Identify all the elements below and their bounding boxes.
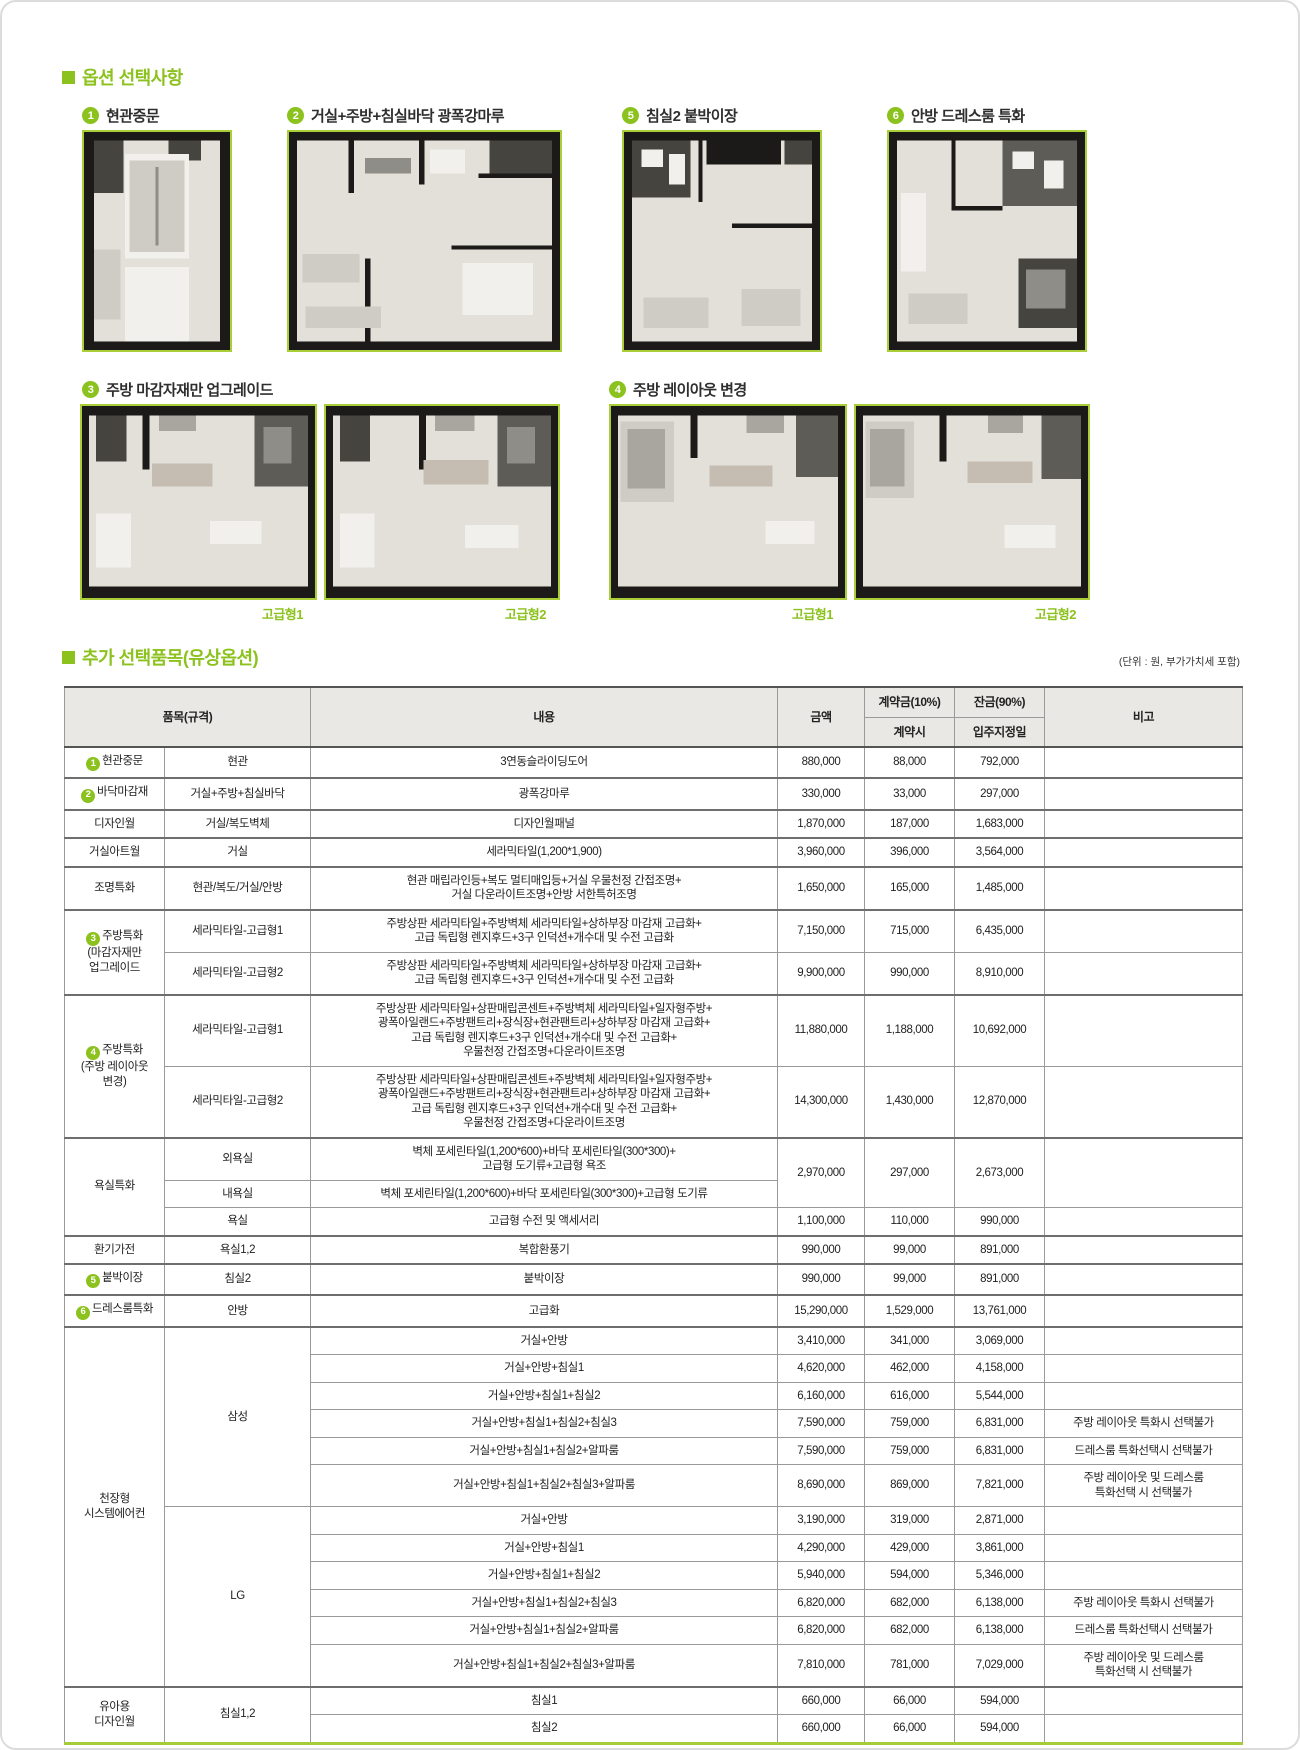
table-cell: 1,870,000 <box>778 810 865 839</box>
table-cell <box>1045 778 1243 809</box>
floor-plan-kitchen-layout-1-image <box>609 404 847 600</box>
table-cell <box>1045 810 1243 839</box>
col-header-balance-when: 입주지정일 <box>955 717 1045 747</box>
table-cell: 거실+안방+침실1 <box>311 1355 778 1383</box>
table-cell: 드레스룸 특화선택시 선택불가 <box>1045 1437 1243 1465</box>
table-cell: 1,485,000 <box>955 867 1045 910</box>
table-cell: 주방상판 세라믹타일+주방벽체 세라믹타일+상하부장 마감재 고급화+고급 독립… <box>311 952 778 995</box>
option-label-text: 주방 레이아웃 변경 <box>633 379 747 400</box>
table-cell: 5붙박이장 <box>65 1264 165 1295</box>
table-cell: 682,000 <box>865 1589 955 1617</box>
table-cell: 세라믹타일-고급형1 <box>165 910 311 953</box>
table-cell: 세라믹타일-고급형2 <box>165 1066 311 1138</box>
table-cell: 욕실특화 <box>65 1138 165 1236</box>
table-cell: 15,290,000 <box>778 1295 865 1326</box>
table-cell: 5,346,000 <box>955 1562 1045 1590</box>
table-cell: 욕실1,2 <box>165 1236 311 1265</box>
table-cell: 천장형시스템에어컨 <box>65 1327 165 1687</box>
table-cell: 환기가전 <box>65 1236 165 1265</box>
table-cell <box>1045 747 1243 778</box>
table-cell <box>1045 1264 1243 1295</box>
paid-options-table-wrap: 품목(규격) 내용 금액 계약금(10%) 잔금(90%) 비고 계약시 입주지… <box>64 686 1242 1745</box>
col-header-downpayment-when: 계약시 <box>865 717 955 747</box>
table-cell: 1,430,000 <box>865 1066 955 1138</box>
option-label-6: 6 안방 드레스룸 특화 <box>887 105 1025 126</box>
table-row: 유아용디자인월침실1,2침실1660,00066,000594,000 <box>65 1687 1243 1715</box>
plan-caption: 고급형1 <box>727 604 833 623</box>
table-cell: 세라믹타일-고급형1 <box>165 995 311 1067</box>
table-cell: 2,970,000 <box>778 1138 865 1208</box>
table-row: 5붙박이장침실2붙박이장990,00099,000891,000 <box>65 1264 1243 1295</box>
option-label-5: 5 침실2 붙박이장 <box>622 105 737 126</box>
floor-plan-flooring-image <box>287 130 562 352</box>
table-cell <box>1045 1534 1243 1562</box>
table-cell: 거실+안방 <box>311 1327 778 1355</box>
option-label-text: 주방 마감자재만 업그레이드 <box>106 379 273 400</box>
table-row: 4주방특화(주방 레이아웃변경)세라믹타일-고급형1주방상판 세라믹타일+상판매… <box>65 995 1243 1067</box>
table-cell: 7,810,000 <box>778 1644 865 1687</box>
col-header-content: 내용 <box>311 687 778 747</box>
option-number-badge: 4 <box>86 1046 100 1060</box>
table-cell: 1,529,000 <box>865 1295 955 1326</box>
table-cell: 거실/복도벽체 <box>165 810 311 839</box>
floor-plan-master-dressroom-image <box>887 130 1087 352</box>
table-row: 거실아트월거실세라믹타일(1,200*1,900)3,960,000396,00… <box>65 838 1243 867</box>
table-cell: 3,861,000 <box>955 1534 1045 1562</box>
table-cell: 297,000 <box>865 1138 955 1208</box>
table-cell: 주방 레이아웃 및 드레스룸특화선택 시 선택불가 <box>1045 1465 1243 1507</box>
table-row: LG거실+안방3,190,000319,0002,871,000 <box>65 1507 1243 1535</box>
table-cell: 1,100,000 <box>778 1208 865 1236</box>
table-cell: 99,000 <box>865 1236 955 1265</box>
col-header-amount: 금액 <box>778 687 865 747</box>
table-cell: 759,000 <box>865 1437 955 1465</box>
table-cell <box>1045 1687 1243 1715</box>
option-number-badge: 6 <box>887 107 904 124</box>
option-number-badge: 5 <box>622 107 639 124</box>
table-cell: 7,590,000 <box>778 1410 865 1438</box>
table-cell: 디자인월패널 <box>311 810 778 839</box>
section-title-text: 옵션 선택사항 <box>82 64 183 90</box>
table-cell: 삼성 <box>165 1327 311 1507</box>
table-cell: 3,564,000 <box>955 838 1045 867</box>
table-cell: 14,300,000 <box>778 1066 865 1138</box>
table-cell: 3,410,000 <box>778 1327 865 1355</box>
table-row: 1현관중문현관3연동슬라이딩도어880,00088,000792,000 <box>65 747 1243 778</box>
table-cell: 319,000 <box>865 1507 955 1535</box>
table-row: 욕실특화외욕실벽체 포세린타일(1,200*600)+바닥 포세린타일(300*… <box>65 1138 1243 1181</box>
table-cell: 66,000 <box>865 1687 955 1715</box>
table-cell: 현관 매립라인등+복도 멀티매입등+거실 우물천정 간접조명+거실 다운라이트조… <box>311 867 778 910</box>
table-cell: 고급화 <box>311 1295 778 1326</box>
section-title-paid-options: 추가 선택품목(유상옵션) <box>62 644 258 670</box>
col-header-item: 품목(규격) <box>65 687 311 747</box>
table-cell: 3,069,000 <box>955 1327 1045 1355</box>
table-cell: 거실+안방+침실1+침실2+알파룸 <box>311 1617 778 1645</box>
table-cell: 4,158,000 <box>955 1355 1045 1383</box>
table-cell: 7,821,000 <box>955 1465 1045 1507</box>
table-cell <box>1045 1295 1243 1326</box>
table-cell: 침실2 <box>165 1264 311 1295</box>
table-cell <box>1045 1327 1243 1355</box>
table-cell: 6,820,000 <box>778 1617 865 1645</box>
table-cell: 297,000 <box>955 778 1045 809</box>
table-cell: 33,000 <box>865 778 955 809</box>
table-cell: 광폭강마루 <box>311 778 778 809</box>
table-cell: 616,000 <box>865 1382 955 1410</box>
table-cell: 3연동슬라이딩도어 <box>311 747 778 778</box>
table-cell <box>1045 1382 1243 1410</box>
table-cell <box>1045 952 1243 995</box>
table-cell: 주방상판 세라믹타일+주방벽체 세라믹타일+상하부장 마감재 고급화+고급 독립… <box>311 910 778 953</box>
table-cell: 주방 레이아웃 특화시 선택불가 <box>1045 1410 1243 1438</box>
option-label-2: 2 거실+주방+침실바닥 광폭강마루 <box>287 105 504 126</box>
table-row: 천장형시스템에어컨삼성거실+안방3,410,000341,0003,069,00… <box>65 1327 1243 1355</box>
table-cell: 4,290,000 <box>778 1534 865 1562</box>
table-cell: 세라믹타일-고급형2 <box>165 952 311 995</box>
table-cell: 5,544,000 <box>955 1382 1045 1410</box>
table-cell: 3,190,000 <box>778 1507 865 1535</box>
table-cell <box>1045 1715 1243 1744</box>
square-bullet-icon <box>62 71 75 84</box>
table-cell: 거실+안방+침실1 <box>311 1534 778 1562</box>
table-cell: 거실+주방+침실바닥 <box>165 778 311 809</box>
table-cell: 891,000 <box>955 1236 1045 1265</box>
table-cell: 9,900,000 <box>778 952 865 995</box>
table-cell: 990,000 <box>778 1264 865 1295</box>
table-cell: 7,150,000 <box>778 910 865 953</box>
table-cell <box>1045 1355 1243 1383</box>
table-header-row: 품목(규격) 내용 금액 계약금(10%) 잔금(90%) 비고 <box>65 687 1243 717</box>
option-number-badge: 4 <box>609 381 626 398</box>
table-cell <box>1045 910 1243 953</box>
table-cell: 8,690,000 <box>778 1465 865 1507</box>
table-row: 환기가전욕실1,2복합환풍기990,00099,000891,000 <box>65 1236 1243 1265</box>
table-cell: 1,683,000 <box>955 810 1045 839</box>
table-cell: 110,000 <box>865 1208 955 1236</box>
table-cell <box>1045 867 1243 910</box>
table-cell: 682,000 <box>865 1617 955 1645</box>
col-header-downpayment: 계약금(10%) <box>865 687 955 717</box>
table-cell: 3주방특화(마감자재만업그레이드 <box>65 910 165 995</box>
option-number-badge: 3 <box>86 932 100 946</box>
table-cell <box>1045 1066 1243 1138</box>
table-cell: 디자인월 <box>65 810 165 839</box>
option-number-badge: 2 <box>81 789 95 803</box>
table-cell: 990,000 <box>778 1236 865 1265</box>
section-title-text: 추가 선택품목(유상옵션) <box>82 644 258 670</box>
table-row: 6드레스룸특화안방고급화15,290,0001,529,00013,761,00… <box>65 1295 1243 1326</box>
table-cell: 396,000 <box>865 838 955 867</box>
table-cell: 현관 <box>165 747 311 778</box>
table-row: 조명특화현관/복도/거실/안방현관 매립라인등+복도 멀티매입등+거실 우물천정… <box>65 867 1243 910</box>
plan-caption: 고급형2 <box>440 604 546 623</box>
table-row: 세라믹타일-고급형2주방상판 세라믹타일+상판매립콘센트+주방벽체 세라믹타일+… <box>65 1066 1243 1138</box>
option-number-badge: 5 <box>86 1274 100 1288</box>
table-cell: 안방 <box>165 1295 311 1326</box>
table-cell: 거실+안방+침실1+침실2+침실3 <box>311 1589 778 1617</box>
table-cell: 주방상판 세라믹타일+상판매립콘센트+주방벽체 세라믹타일+일자형주방+광폭아일… <box>311 995 778 1067</box>
table-cell <box>1045 995 1243 1067</box>
table-cell: 외욕실 <box>165 1138 311 1181</box>
table-cell: 99,000 <box>865 1264 955 1295</box>
table-cell: 6드레스룸특화 <box>65 1295 165 1326</box>
option-label-1: 1 현관중문 <box>82 105 159 126</box>
table-cell: 759,000 <box>865 1410 955 1438</box>
table-cell: 6,435,000 <box>955 910 1045 953</box>
table-row: 3주방특화(마감자재만업그레이드세라믹타일-고급형1주방상판 세라믹타일+주방벽… <box>65 910 1243 953</box>
page: 옵션 선택사항 1 현관중문 2 거실+주방+침실바닥 광폭강마루 5 침실2 … <box>0 0 1300 1750</box>
table-cell <box>1045 1138 1243 1208</box>
table-cell: 주방 레이아웃 및 드레스룸특화선택 시 선택불가 <box>1045 1644 1243 1687</box>
table-cell: 10,692,000 <box>955 995 1045 1067</box>
table-cell: 주방 레이아웃 특화시 선택불가 <box>1045 1589 1243 1617</box>
table-cell: 1현관중문 <box>65 747 165 778</box>
table-cell: 429,000 <box>865 1534 955 1562</box>
table-cell: 벽체 포세린타일(1,200*600)+바닥 포세린타일(300*300)+고급… <box>311 1138 778 1181</box>
table-cell: 11,880,000 <box>778 995 865 1067</box>
table-cell: 594,000 <box>955 1687 1045 1715</box>
unit-note: (단위 : 원, 부가가치세 포함) <box>1119 654 1240 669</box>
table-cell: 187,000 <box>865 810 955 839</box>
table-cell <box>1045 1236 1243 1265</box>
table-cell: 8,910,000 <box>955 952 1045 995</box>
table-cell: 660,000 <box>778 1687 865 1715</box>
table-cell: 792,000 <box>955 747 1045 778</box>
plan-caption: 고급형1 <box>197 604 303 623</box>
table-cell: 6,160,000 <box>778 1382 865 1410</box>
table-cell <box>1045 838 1243 867</box>
table-cell: 88,000 <box>865 747 955 778</box>
table-cell: 880,000 <box>778 747 865 778</box>
table-cell: 침실1,2 <box>165 1687 311 1744</box>
table-cell: 거실 <box>165 838 311 867</box>
table-cell: 1,188,000 <box>865 995 955 1067</box>
table-cell: 거실+안방+침실1+침실2 <box>311 1382 778 1410</box>
table-cell <box>1045 1208 1243 1236</box>
table-cell: 드레스룸 특화선택시 선택불가 <box>1045 1617 1243 1645</box>
floor-plan-kitchen-finish-2-image <box>324 404 560 600</box>
table-cell: 990,000 <box>955 1208 1045 1236</box>
table-cell: 66,000 <box>865 1715 955 1744</box>
table-cell: 7,029,000 <box>955 1644 1045 1687</box>
table-row: 디자인월거실/복도벽체디자인월패널1,870,000187,0001,683,0… <box>65 810 1243 839</box>
table-cell: 462,000 <box>865 1355 955 1383</box>
col-header-note: 비고 <box>1045 687 1243 747</box>
floor-plan-kitchen-layout-2-image <box>854 404 1090 600</box>
table-row: 욕실고급형 수전 및 액세서리1,100,000110,000990,000 <box>65 1208 1243 1236</box>
section-title-options: 옵션 선택사항 <box>62 64 183 90</box>
option-label-text: 현관중문 <box>106 105 159 126</box>
table-cell: 5,940,000 <box>778 1562 865 1590</box>
table-cell: 조명특화 <box>65 867 165 910</box>
table-cell: 594,000 <box>865 1562 955 1590</box>
table-cell: 붙박이장 <box>311 1264 778 1295</box>
table-cell: 거실+안방+침실1+침실2 <box>311 1562 778 1590</box>
table-cell: 2,673,000 <box>955 1138 1045 1208</box>
table-cell: 13,761,000 <box>955 1295 1045 1326</box>
table-cell: 6,820,000 <box>778 1589 865 1617</box>
table-cell: 781,000 <box>865 1644 955 1687</box>
table-cell: 990,000 <box>865 952 955 995</box>
floor-plan-kitchen-finish-1-image <box>80 404 317 600</box>
table-cell: 거실+안방+침실1+침실2+알파룸 <box>311 1437 778 1465</box>
table-cell: 12,870,000 <box>955 1066 1045 1138</box>
table-cell: 330,000 <box>778 778 865 809</box>
table-cell: 4주방특화(주방 레이아웃변경) <box>65 995 165 1138</box>
option-label-text: 안방 드레스룸 특화 <box>911 105 1025 126</box>
table-cell: 6,831,000 <box>955 1437 1045 1465</box>
option-label-4: 4 주방 레이아웃 변경 <box>609 379 747 400</box>
table-row: 2바닥마감재거실+주방+침실바닥광폭강마루330,00033,000297,00… <box>65 778 1243 809</box>
option-number-badge: 3 <box>82 381 99 398</box>
table-cell: 4,620,000 <box>778 1355 865 1383</box>
table-cell: 거실아트월 <box>65 838 165 867</box>
paid-options-table: 품목(규격) 내용 금액 계약금(10%) 잔금(90%) 비고 계약시 입주지… <box>64 686 1243 1745</box>
option-number-badge: 6 <box>76 1306 90 1320</box>
square-bullet-icon <box>62 651 75 664</box>
table-cell: 거실+안방+침실1+침실2+침실3 <box>311 1410 778 1438</box>
option-label-3: 3 주방 마감자재만 업그레이드 <box>82 379 273 400</box>
table-cell: 내욕실 <box>165 1180 311 1208</box>
table-cell: 891,000 <box>955 1264 1045 1295</box>
table-cell: 유아용디자인월 <box>65 1687 165 1744</box>
table-cell: 거실+안방 <box>311 1507 778 1535</box>
table-cell: 341,000 <box>865 1327 955 1355</box>
table-cell: 침실2 <box>311 1715 778 1744</box>
table-cell <box>1045 1562 1243 1590</box>
table-row: 세라믹타일-고급형2주방상판 세라믹타일+주방벽체 세라믹타일+상하부장 마감재… <box>65 952 1243 995</box>
table-cell: 869,000 <box>865 1465 955 1507</box>
option-number-badge: 1 <box>82 107 99 124</box>
table-cell: 715,000 <box>865 910 955 953</box>
table-cell: LG <box>165 1507 311 1687</box>
table-cell: 6,138,000 <box>955 1589 1045 1617</box>
table-cell: 2,871,000 <box>955 1507 1045 1535</box>
table-cell: 6,831,000 <box>955 1410 1045 1438</box>
table-cell: 594,000 <box>955 1715 1045 1744</box>
table-cell: 거실+안방+침실1+침실2+침실3+알파룸 <box>311 1644 778 1687</box>
floor-plan-bedroom2-closet-image <box>622 130 822 352</box>
option-label-text: 거실+주방+침실바닥 광폭강마루 <box>311 105 504 126</box>
table-cell: 침실1 <box>311 1687 778 1715</box>
option-number-badge: 1 <box>86 757 100 771</box>
col-header-balance: 잔금(90%) <box>955 687 1045 717</box>
table-cell: 고급형 수전 및 액세서리 <box>311 1208 778 1236</box>
table-cell: 165,000 <box>865 867 955 910</box>
table-cell: 벽체 포세린타일(1,200*600)+바닥 포세린타일(300*300)+고급… <box>311 1180 778 1208</box>
table-cell: 거실+안방+침실1+침실2+침실3+알파룸 <box>311 1465 778 1507</box>
table-cell <box>1045 1507 1243 1535</box>
table-cell: 욕실 <box>165 1208 311 1236</box>
table-cell: 3,960,000 <box>778 838 865 867</box>
plan-caption: 고급형2 <box>970 604 1076 623</box>
table-cell: 현관/복도/거실/안방 <box>165 867 311 910</box>
table-cell: 세라믹타일(1,200*1,900) <box>311 838 778 867</box>
table-cell: 6,138,000 <box>955 1617 1045 1645</box>
floor-plan-entry-door-image <box>82 130 232 352</box>
table-cell: 주방상판 세라믹타일+상판매립콘센트+주방벽체 세라믹타일+일자형주방+광폭아일… <box>311 1066 778 1138</box>
table-cell: 2바닥마감재 <box>65 778 165 809</box>
table-cell: 복합환풍기 <box>311 1236 778 1265</box>
table-cell: 1,650,000 <box>778 867 865 910</box>
table-cell: 7,590,000 <box>778 1437 865 1465</box>
option-label-text: 침실2 붙박이장 <box>646 105 737 126</box>
option-number-badge: 2 <box>287 107 304 124</box>
table-cell: 660,000 <box>778 1715 865 1744</box>
